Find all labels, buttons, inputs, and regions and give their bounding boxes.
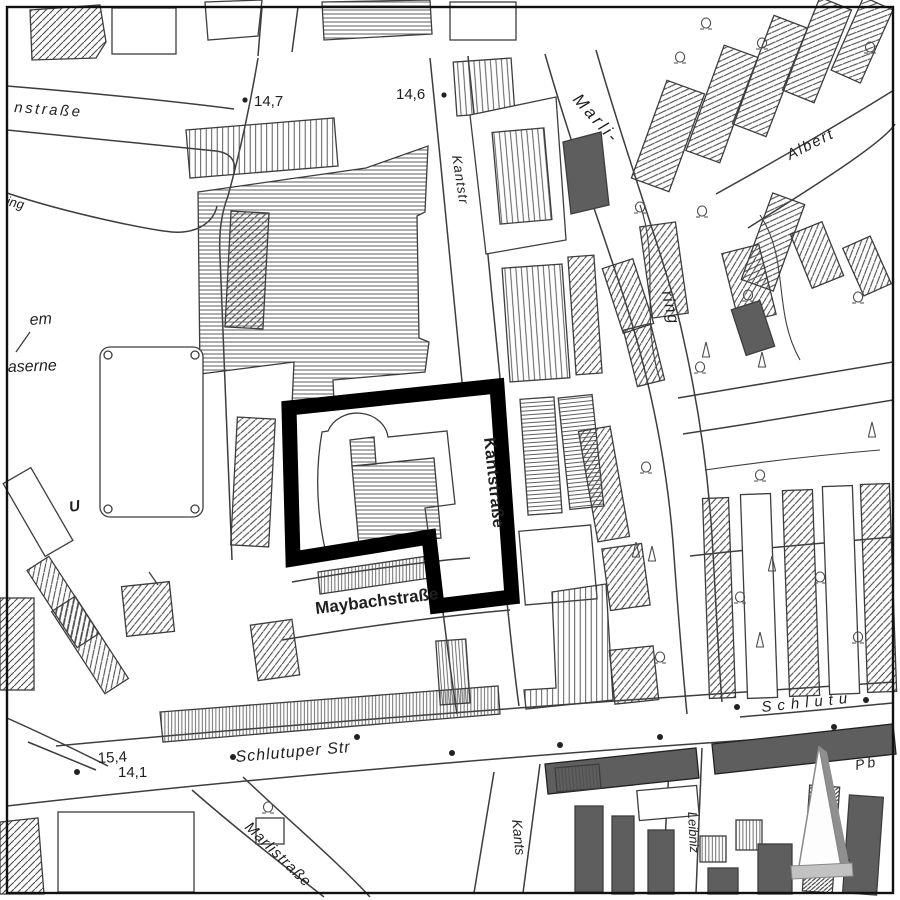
tree-deciduous-icon <box>700 18 712 29</box>
building <box>822 486 859 695</box>
tree-deciduous-icon <box>754 470 766 481</box>
street-label-ing: ing <box>5 193 26 212</box>
building <box>568 255 602 375</box>
building <box>3 468 73 557</box>
map-canvas: nstraße ing em aserne U Kantstr Marli- r… <box>0 0 900 900</box>
area-label-u: U <box>68 497 83 516</box>
building <box>860 484 896 693</box>
area-label-em: em <box>29 310 52 329</box>
building <box>225 211 269 329</box>
building-dark <box>648 830 674 894</box>
street-fork-left <box>7 718 108 770</box>
building <box>122 582 175 637</box>
street-label-schlutuper-str: Schlutuper Str <box>235 739 351 766</box>
building <box>231 417 276 547</box>
building <box>703 498 736 699</box>
building <box>0 598 34 690</box>
tree-deciduous-icon <box>696 206 708 217</box>
building <box>436 639 470 705</box>
building <box>790 222 843 289</box>
building <box>740 494 777 699</box>
elevation-label-147: 14,7 <box>254 93 283 110</box>
building <box>843 236 892 296</box>
street-label-pb: Pb <box>854 753 880 773</box>
building-dark <box>575 806 603 892</box>
north-arrow-icon <box>791 746 853 879</box>
building <box>782 490 819 697</box>
building <box>250 619 299 680</box>
building <box>112 8 176 54</box>
street-label-kantstr: Kantstr <box>449 154 472 206</box>
tree-deciduous-icon <box>654 652 666 663</box>
street-label-leibniz: Leibniz <box>685 811 702 853</box>
elevation-dot <box>242 97 247 102</box>
street-label-nstrasse: nstraße <box>14 99 83 121</box>
building-dark <box>758 844 792 894</box>
building <box>602 544 650 611</box>
street-kaserne-north-edge <box>7 193 217 232</box>
tree-conifer-icon <box>648 546 656 561</box>
city-map: nstraße ing em aserne U Kantstr Marli- r… <box>0 0 900 900</box>
street-label-albert: Albert <box>783 125 837 164</box>
building <box>555 764 601 792</box>
building <box>609 646 658 704</box>
building-dark <box>708 868 738 894</box>
street-ring-east-branch <box>678 362 893 434</box>
elevation-dot <box>441 92 446 97</box>
kaserne-building <box>100 347 203 517</box>
building <box>492 128 552 224</box>
factory-strip <box>186 118 338 178</box>
building-dark <box>612 816 634 894</box>
elevation-label-141: 14,1 <box>118 764 147 781</box>
street-kant-bottom-edges <box>474 764 540 893</box>
street-top-gap <box>258 7 298 56</box>
tree-deciduous-icon <box>674 52 686 63</box>
tree-conifer-icon <box>758 352 766 367</box>
north-arrow-base <box>791 863 853 879</box>
area-label-aserne: aserne <box>8 357 58 376</box>
building <box>52 596 129 693</box>
building <box>700 836 726 862</box>
elevation-label-146: 14,6 <box>396 86 425 103</box>
building <box>58 812 194 892</box>
tree-deciduous-icon <box>640 462 652 473</box>
building <box>520 397 562 515</box>
tree-conifer-icon <box>702 342 710 357</box>
tree-deciduous-icon <box>694 362 706 373</box>
building-blocks <box>0 0 897 895</box>
label-leader-line <box>16 332 30 352</box>
building <box>502 264 570 382</box>
site-building <box>350 437 376 466</box>
building <box>30 5 106 60</box>
building <box>623 323 664 386</box>
tree-conifer-icon <box>868 422 876 437</box>
street-label-kants: Kants <box>509 819 529 856</box>
building-dark <box>563 132 609 214</box>
